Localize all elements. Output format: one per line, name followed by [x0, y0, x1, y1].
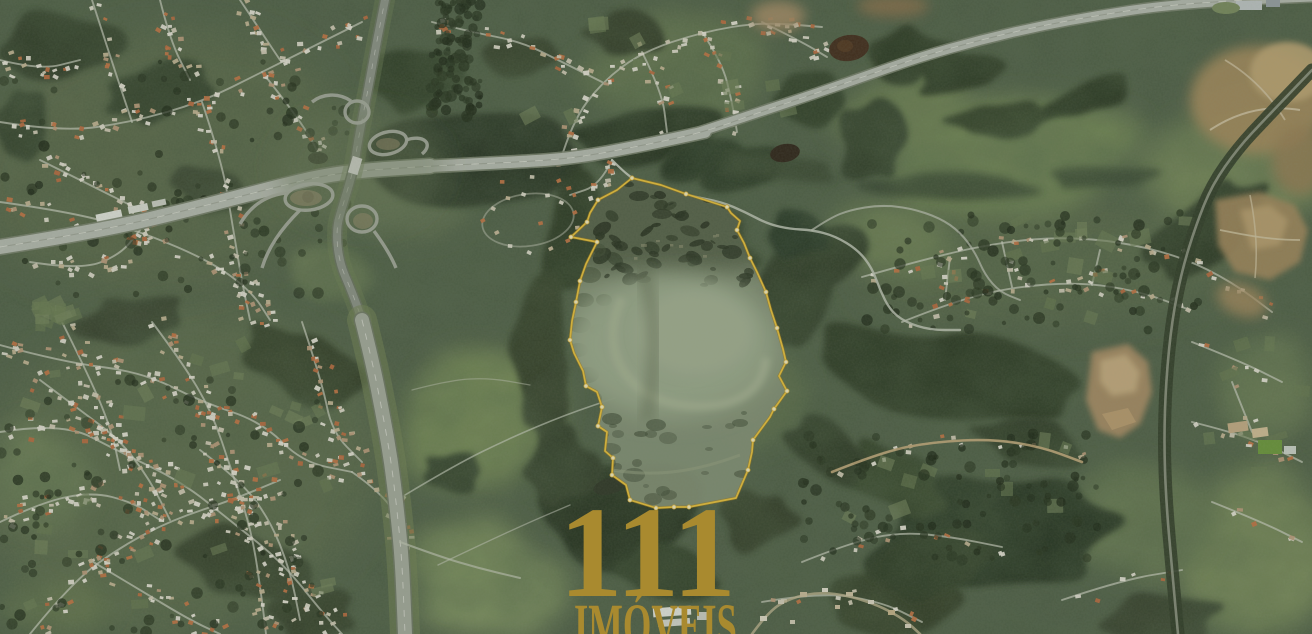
- svg-text:IMÓVEIS: IMÓVEIS: [574, 591, 737, 634]
